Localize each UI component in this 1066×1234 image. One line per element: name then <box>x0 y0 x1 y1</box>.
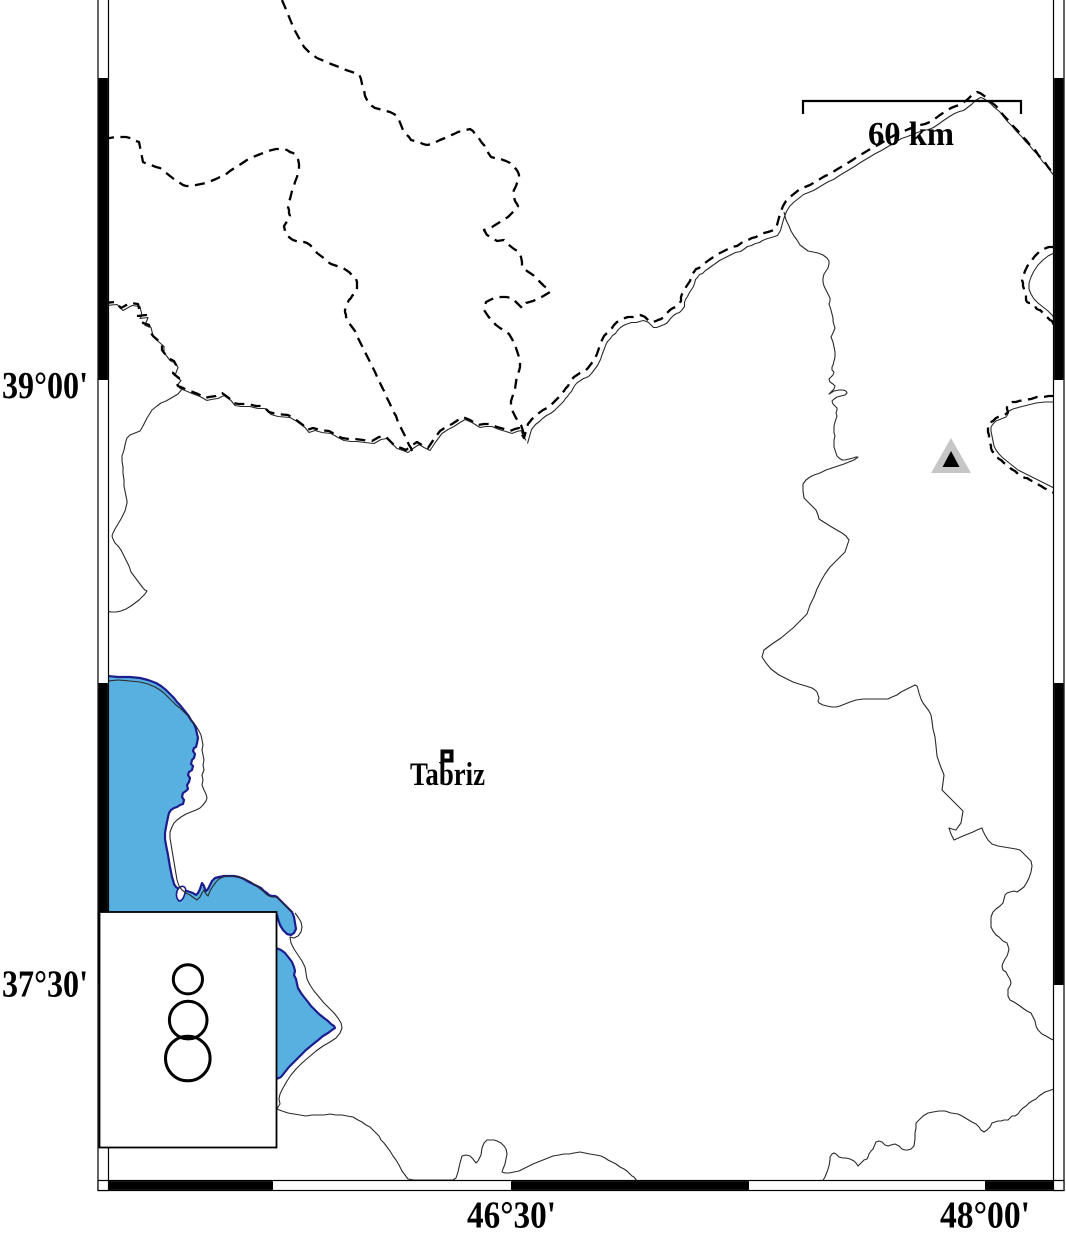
svg-text:60 km: 60 km <box>868 116 954 153</box>
svg-text:37°30': 37°30' <box>2 964 88 1006</box>
svg-text:39°00': 39°00' <box>2 365 88 407</box>
svg-text:48°00': 48°00' <box>940 1195 1030 1230</box>
svg-text:Tabriz: Tabriz <box>410 757 485 793</box>
svg-text:46°30': 46°30' <box>467 1195 556 1230</box>
